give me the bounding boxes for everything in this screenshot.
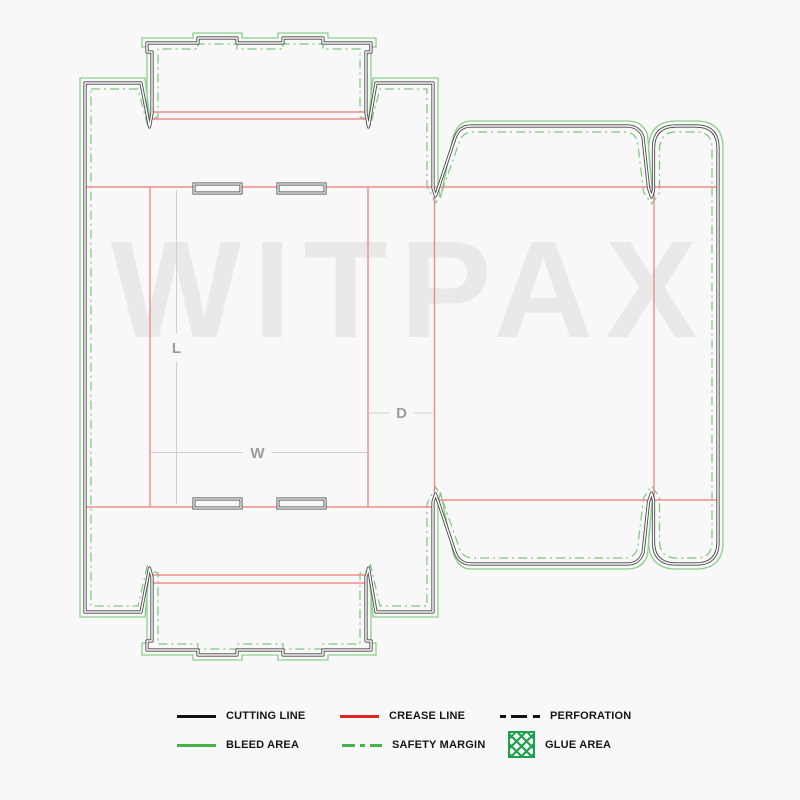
dimension-d-label: D <box>396 405 407 422</box>
legend-label: BLEED AREA <box>226 739 299 751</box>
legend-item-bleed-area: BLEED AREA <box>177 737 299 753</box>
glue-area-swatch <box>508 731 535 758</box>
dieline-diagram: WITPAX <box>0 0 800 690</box>
watermark-text: WITPAX <box>111 213 709 367</box>
perforation-swatch <box>500 715 540 718</box>
dimension-w-label: W <box>250 445 265 462</box>
legend-item-glue-area: GLUE AREA <box>508 731 611 758</box>
legend-label: PERFORATION <box>550 710 631 722</box>
legend-item-cutting-line: CUTTING LINE <box>177 708 305 724</box>
bleed-area-swatch <box>177 744 216 747</box>
legend-item-crease-line: CREASE LINE <box>340 708 465 724</box>
legend-label: SAFETY MARGIN <box>392 739 485 751</box>
legend-item-safety-margin: SAFETY MARGIN <box>342 737 485 753</box>
legend-label: CREASE LINE <box>389 710 465 722</box>
dimension-l-label: L <box>172 340 181 357</box>
dieline-page: WITPAX <box>0 0 800 800</box>
lock-slot <box>278 499 325 508</box>
legend-label: GLUE AREA <box>545 739 611 751</box>
lock-slot <box>194 499 241 508</box>
crease-line-swatch <box>340 715 379 718</box>
lock-slot <box>278 184 325 193</box>
cutting-line-swatch <box>177 715 216 718</box>
safety-margin-swatch <box>342 744 382 747</box>
lock-slot <box>194 184 241 193</box>
legend-item-perforation: PERFORATION <box>500 708 631 724</box>
legend-label: CUTTING LINE <box>226 710 305 722</box>
